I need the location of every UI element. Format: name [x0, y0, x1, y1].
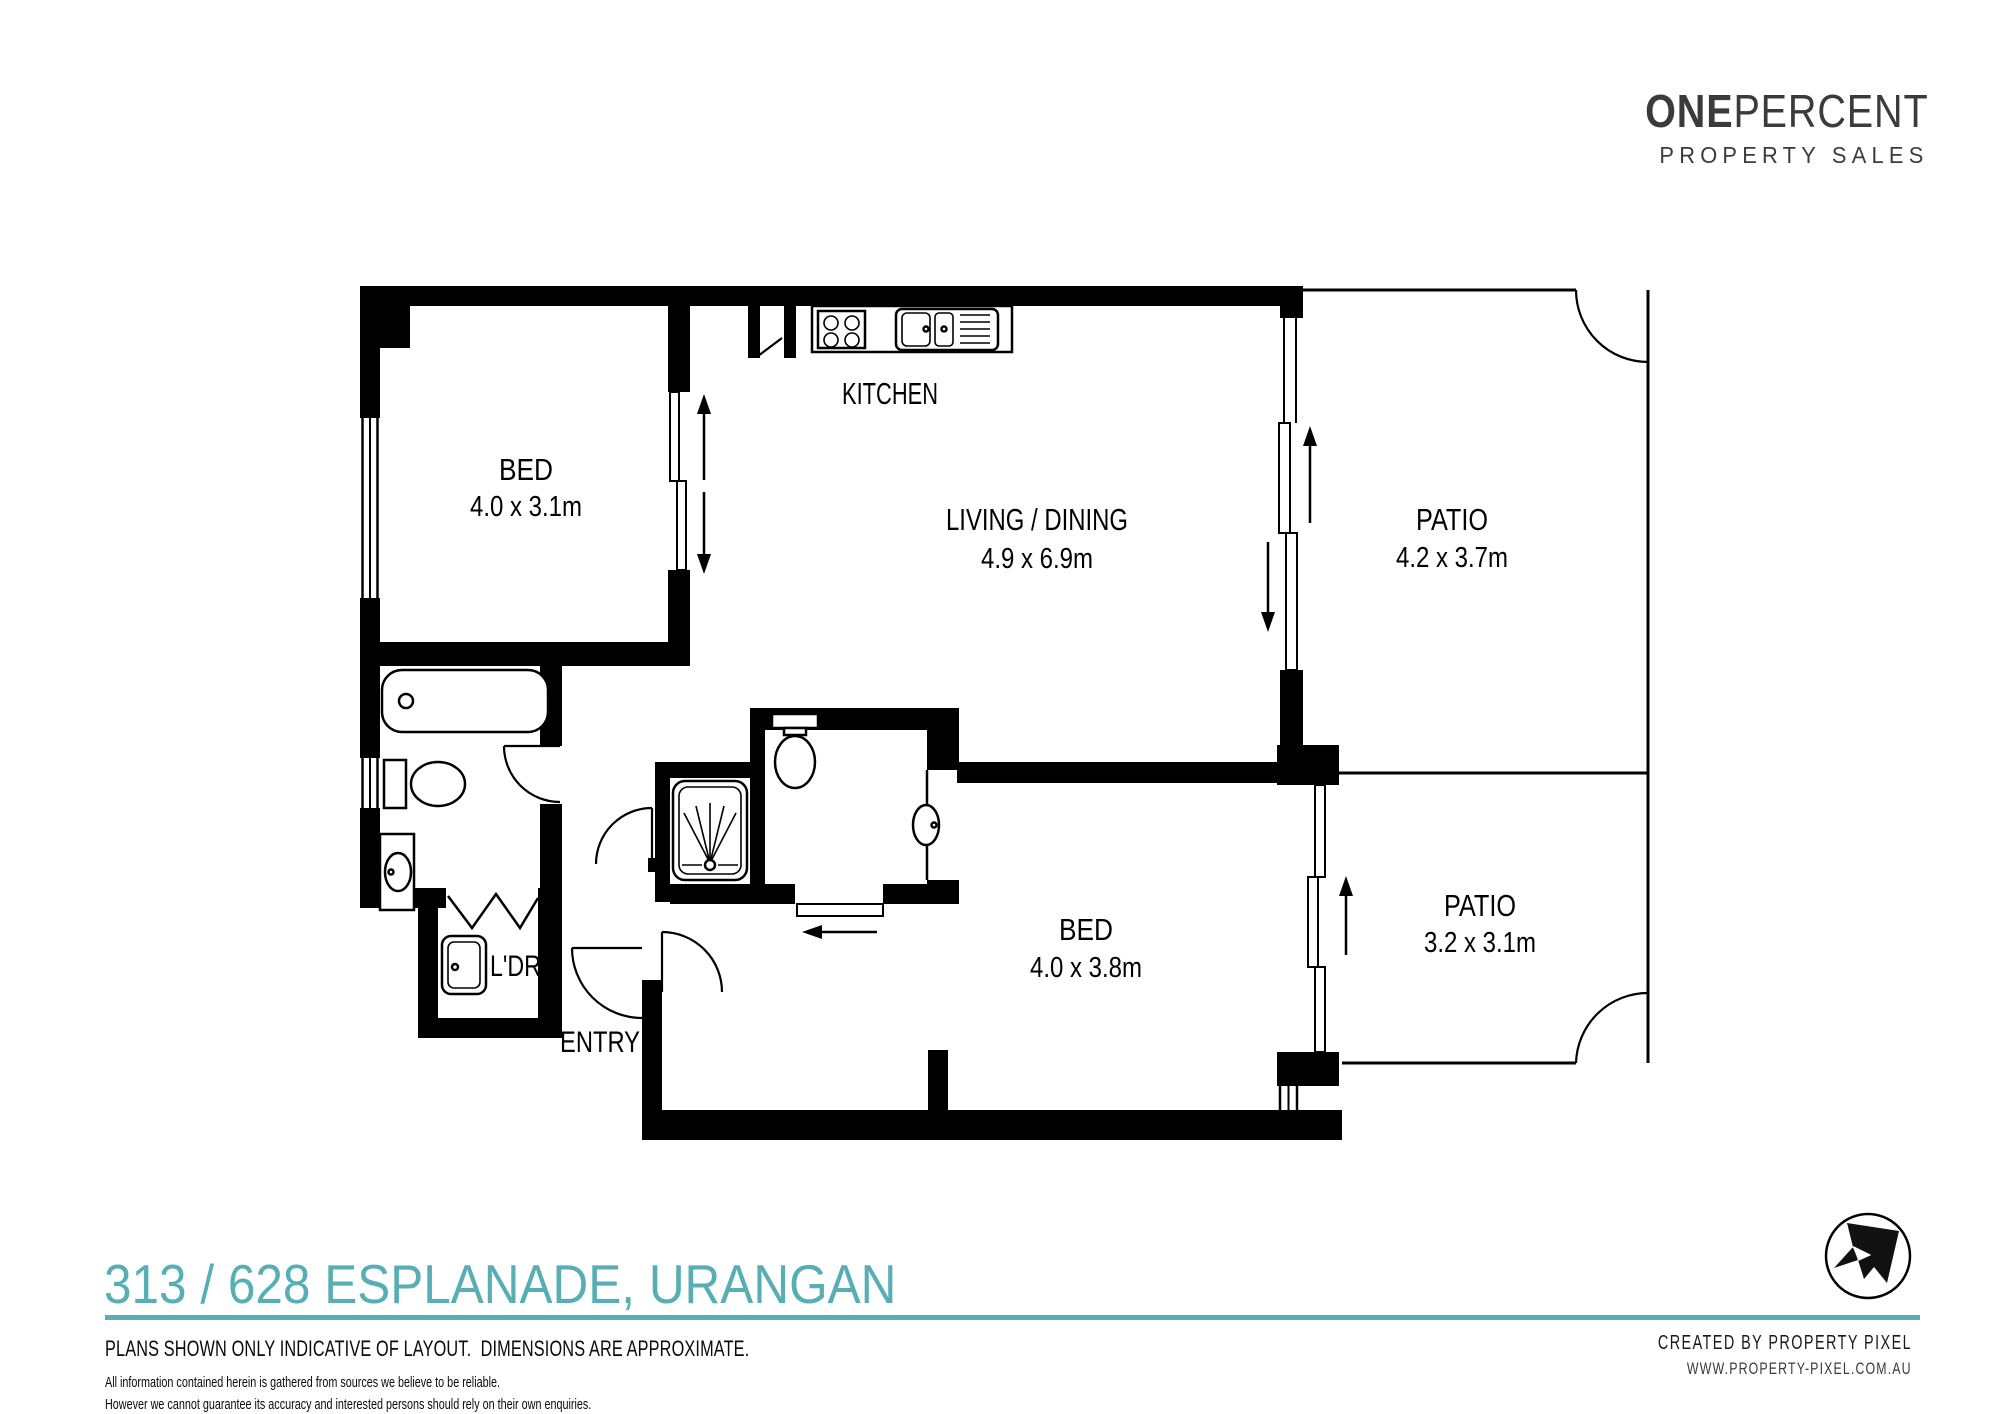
- room-dims: 4.0 x 3.1m: [470, 491, 582, 523]
- toilet-icon: [384, 760, 465, 808]
- room-name: L'DRY: [490, 950, 556, 983]
- sliding-door-bed2-patio: [1308, 785, 1353, 1052]
- door-hall: [596, 808, 652, 864]
- room-dims: 4.9 x 6.9m: [981, 543, 1093, 575]
- sliding-door-living-patio: [1261, 318, 1317, 670]
- patio2-door: [1576, 993, 1648, 1063]
- room-dims: 3.2 x 3.1m: [1424, 927, 1536, 959]
- disclaimer-secondary: All information contained herein is gath…: [105, 1372, 591, 1414]
- agency-name-bold: ONE: [1645, 85, 1733, 137]
- window-bath-west: [360, 758, 380, 808]
- ensuite-toilet-icon: [772, 714, 818, 788]
- ensuite-basin-icon: [913, 805, 939, 845]
- floorplan-drawing: BED 4.0 x 3.1m KITCHEN LIVING / DINING 4…: [360, 280, 1660, 1160]
- room-label-living: LIVING / DINING 4.9 x 6.9m: [946, 502, 1128, 575]
- room-label-patio2: PATIO 3.2 x 3.1m: [1424, 888, 1536, 959]
- double-sink-icon: [896, 309, 998, 350]
- room-label-kitchen: KITCHEN: [842, 376, 938, 411]
- door-entry-outer: [572, 948, 642, 1018]
- basin-icon: [380, 834, 414, 910]
- sliding-door-bed1: [670, 392, 711, 574]
- agency-name: ONEPERCENT: [1645, 84, 1928, 138]
- door-pantry: [758, 338, 782, 356]
- room-label-entry: ENTRY: [560, 1026, 640, 1059]
- teal-divider-rule: [105, 1315, 1920, 1320]
- room-label-bed1: BED 4.0 x 3.1m: [470, 452, 582, 523]
- room-name: LIVING / DINING: [946, 502, 1128, 537]
- agency-name-light: PERCENT: [1733, 85, 1928, 137]
- room-label-laundry: L'DRY: [490, 950, 556, 983]
- property-pixel-logo-icon: [1822, 1210, 1914, 1302]
- cooktop-icon: [818, 311, 865, 348]
- disclaimer-line2: However we cannot guarantee its accuracy…: [105, 1394, 591, 1414]
- agency-logo: ONEPERCENT PROPERTY SALES: [1599, 84, 1929, 169]
- room-name: BED: [1059, 912, 1113, 947]
- credit-url: WWW.PROPERTY-PIXEL.COM.AU: [1687, 1360, 1912, 1379]
- room-label-patio1: PATIO 4.2 x 3.7m: [1396, 502, 1508, 574]
- credit-line: CREATED BY PROPERTY PIXEL: [1658, 1332, 1912, 1355]
- window-bed1-west: [360, 418, 380, 598]
- room-dims: 4.0 x 3.8m: [1030, 952, 1142, 984]
- bathtub-icon: [382, 670, 548, 732]
- room-dims: 4.2 x 3.7m: [1396, 542, 1508, 574]
- zigzag-break: [448, 894, 538, 928]
- floorplan-page: ONEPERCENT PROPERTY SALES: [0, 0, 2000, 1414]
- floorplan-svg: BED 4.0 x 3.1m KITCHEN LIVING / DINING 4…: [360, 280, 1660, 1160]
- laundry-tub-icon: [442, 936, 486, 994]
- room-label-bed2: BED 4.0 x 3.8m: [1030, 912, 1142, 984]
- room-name: PATIO: [1416, 502, 1488, 537]
- room-name: ENTRY: [560, 1026, 640, 1059]
- sliding-door-ensuite: [797, 904, 883, 939]
- room-name: BED: [499, 452, 553, 487]
- agency-tagline: PROPERTY SALES: [1615, 142, 1928, 169]
- window-bed2-south: [1277, 1086, 1300, 1110]
- room-name: PATIO: [1444, 888, 1516, 923]
- door-bathroom: [504, 746, 560, 802]
- room-name: KITCHEN: [842, 376, 938, 411]
- disclaimer-primary: PLANS SHOWN ONLY INDICATIVE OF LAYOUT. D…: [105, 1336, 749, 1362]
- shower-icon: [673, 781, 747, 880]
- property-address: 313 / 628 ESPLANADE, URANGAN: [104, 1252, 896, 1316]
- patio1-door: [1576, 290, 1648, 362]
- disclaimer-line1: All information contained herein is gath…: [105, 1372, 591, 1394]
- door-entry-inner: [662, 932, 722, 992]
